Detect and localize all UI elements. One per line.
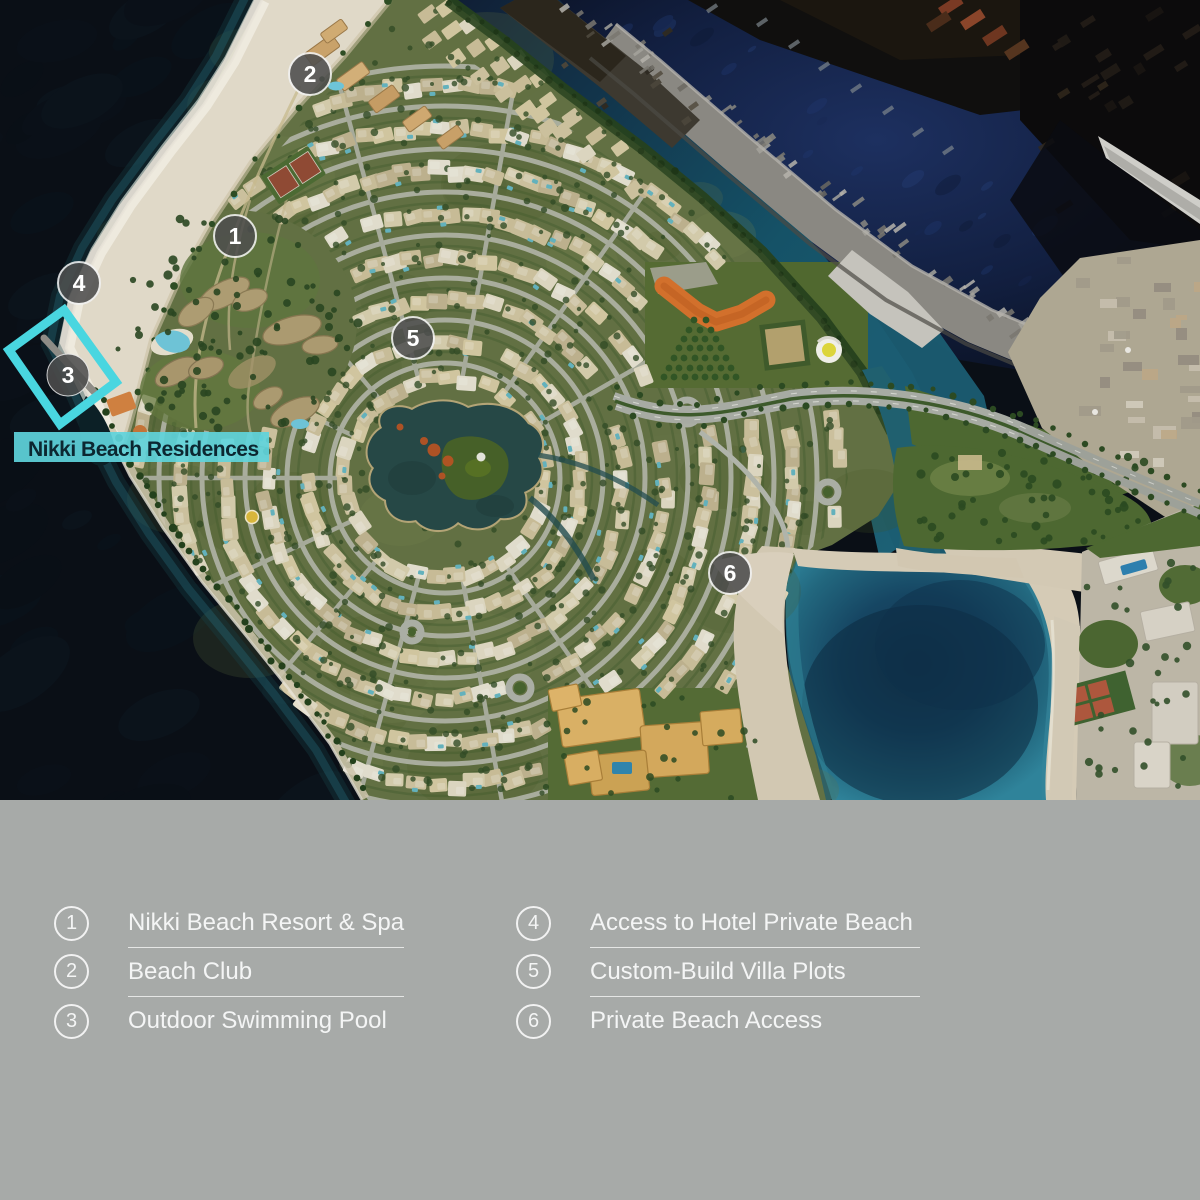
svg-text:4: 4 [73,270,86,296]
svg-text:Nikki Beach Residences: Nikki Beach Residences [28,438,259,461]
svg-text:5: 5 [407,325,420,351]
svg-text:1: 1 [229,223,242,249]
svg-text:3: 3 [62,362,75,388]
svg-text:6: 6 [724,560,737,586]
svg-text:2: 2 [304,61,317,87]
